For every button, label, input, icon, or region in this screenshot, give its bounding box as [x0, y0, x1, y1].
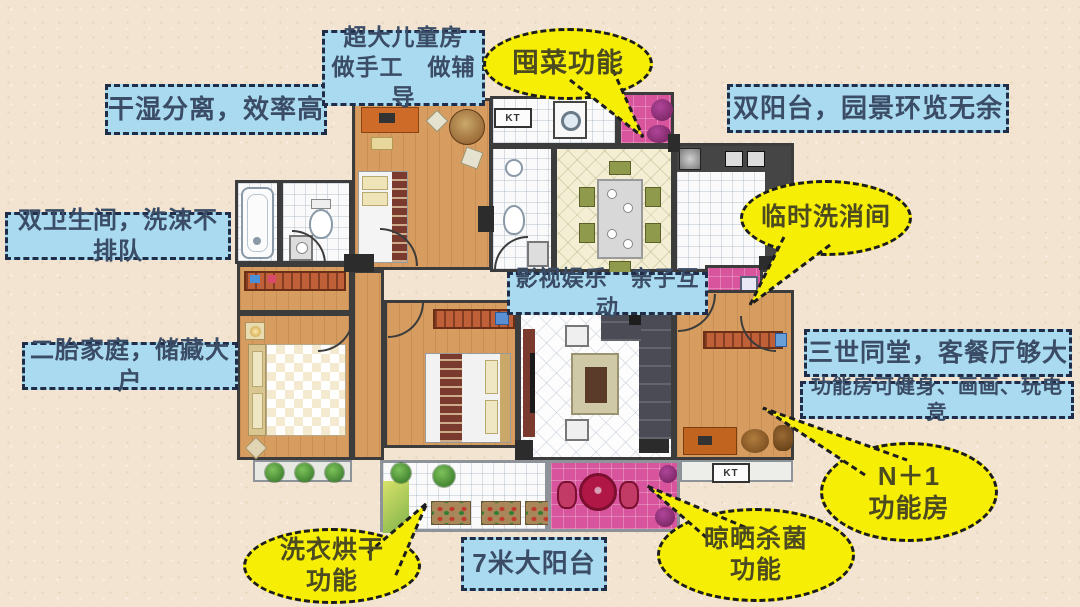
bathtub-icon — [241, 187, 274, 259]
room-dining — [554, 146, 674, 272]
floorplan-infographic: KT KT 干湿分离，效率高 超大儿童房 做手工 做辅导 双阳台，园景环览无余 … — [0, 0, 1080, 607]
bubble-temporary-washroom: 临时洗消间 — [725, 175, 920, 310]
label-three-generations: 三世同堂，客餐厅够大 — [804, 329, 1072, 377]
room-storage-hall — [237, 264, 352, 313]
label-text: 二胎家庭，储藏大户 — [25, 335, 235, 397]
master-pillow — [252, 351, 263, 387]
bathtub-drain — [253, 237, 261, 245]
lamp-icon — [250, 326, 261, 337]
label-dry-wet-separation: 干湿分离，效率高 — [105, 84, 327, 135]
wall-pier — [668, 134, 680, 152]
kids-pillow-2 — [362, 192, 388, 206]
kt-bottom-text: KT — [723, 468, 738, 479]
bedroom2-bed — [425, 353, 511, 443]
label-text: 7米大阳台 — [472, 547, 595, 581]
dining-chair — [609, 161, 631, 175]
label-two-bathrooms: 双卫生间，洗涑不排队 — [5, 212, 231, 260]
coffee-table — [571, 353, 619, 415]
room-bathtub — [235, 180, 280, 264]
flower-box-2 — [481, 501, 521, 525]
dining-chair — [645, 187, 661, 207]
plate — [623, 203, 633, 213]
flower-box-3 — [525, 501, 549, 525]
bedroom2-headboard — [500, 354, 510, 442]
kids-laptop — [379, 113, 395, 123]
plate — [607, 229, 617, 239]
wall-pier — [515, 440, 533, 460]
room-kids-bedroom — [352, 98, 492, 270]
dining-table — [597, 179, 643, 259]
function-laptop — [698, 436, 712, 445]
bathroom-cabinet — [527, 241, 549, 267]
label-text: 超大儿童房 做手工 做辅导 — [325, 23, 482, 113]
wall-pier — [344, 254, 374, 272]
dining-chair — [645, 223, 661, 243]
kt-label-bottom: KT — [712, 463, 750, 483]
label-text: 双卫生间，洗涑不排队 — [8, 205, 228, 267]
dining-chair — [579, 223, 595, 243]
plate — [623, 239, 633, 249]
toilet-icon — [503, 205, 525, 235]
armchair — [565, 325, 589, 347]
label-text: 三世同堂，客餐厅够大 — [808, 337, 1068, 370]
master-pillow-2 — [252, 393, 263, 429]
bubble-text: 囤菜功能 — [483, 28, 653, 100]
bubble-sun-dry-sterilize: 晾晒杀菌 功能 — [635, 480, 860, 607]
stove-icon — [679, 148, 701, 170]
sofa-l-vertical — [639, 311, 671, 439]
tv-icon — [530, 353, 535, 413]
label-kids-room: 超大儿童房 做手工 做辅导 — [322, 30, 485, 106]
kitchen-sink-icon-2 — [747, 151, 765, 167]
wall-pier — [478, 206, 494, 232]
label-text: 干湿分离，效率高 — [108, 93, 324, 127]
shelf-item-2 — [268, 275, 276, 283]
bay-plant-3 — [325, 463, 344, 482]
bubble-text: 洗衣烘干 功能 — [243, 528, 421, 604]
master-bed — [266, 344, 346, 436]
bay-window-master — [253, 460, 352, 482]
label-double-balcony: 双阳台，园景环览无余 — [727, 84, 1009, 133]
bedroom2-pillow-2 — [485, 400, 498, 434]
kids-seat — [426, 110, 449, 133]
bedroom2-pillow — [485, 360, 498, 394]
bay-plant — [265, 463, 284, 482]
function-shelf-item — [775, 333, 787, 347]
kitchen-sink-icon — [725, 151, 743, 167]
label-text: 双阳台，园景环览无余 — [733, 92, 1003, 126]
kids-seat-2 — [460, 146, 483, 169]
patio-table — [579, 473, 617, 511]
nightstand — [245, 322, 265, 340]
bathroom-sink-icon — [505, 159, 523, 177]
sofa-end-table — [639, 439, 669, 453]
label-text: 影视娱乐 亲子互动 — [510, 265, 705, 322]
plate — [607, 189, 617, 199]
kids-pillow — [362, 176, 388, 190]
hallway — [352, 270, 384, 460]
kt-label-top: KT — [494, 108, 532, 128]
tv-cabinet — [523, 329, 535, 437]
balcony-plant — [391, 463, 411, 483]
master-rug — [245, 437, 268, 460]
balcony-plant-2 — [433, 465, 455, 487]
bubble-laundry-drying: 洗衣烘干 功能 — [240, 495, 440, 607]
bay-plant-2 — [295, 463, 314, 482]
patio-chair — [557, 481, 577, 509]
shelf-item — [250, 275, 260, 283]
label-media-parenting: 影视娱乐 亲子互动 — [507, 272, 708, 315]
label-second-child-storage: 二胎家庭，储藏大户 — [22, 342, 238, 390]
bubble-text: 晾晒杀菌 功能 — [657, 508, 855, 602]
kids-stool — [371, 137, 393, 150]
function-desk — [683, 427, 737, 455]
kt-top-text: KT — [505, 113, 520, 124]
bubble-text: 临时洗消间 — [740, 180, 912, 256]
armchair-2 — [565, 419, 589, 441]
toilet-tank — [311, 199, 331, 209]
bedroom2-bed-runner — [440, 354, 462, 442]
coffee-table-tray — [585, 367, 607, 403]
label-balcony-7m: 7米大阳台 — [461, 537, 607, 591]
master-headboard — [248, 344, 266, 436]
dining-chair — [579, 187, 595, 207]
